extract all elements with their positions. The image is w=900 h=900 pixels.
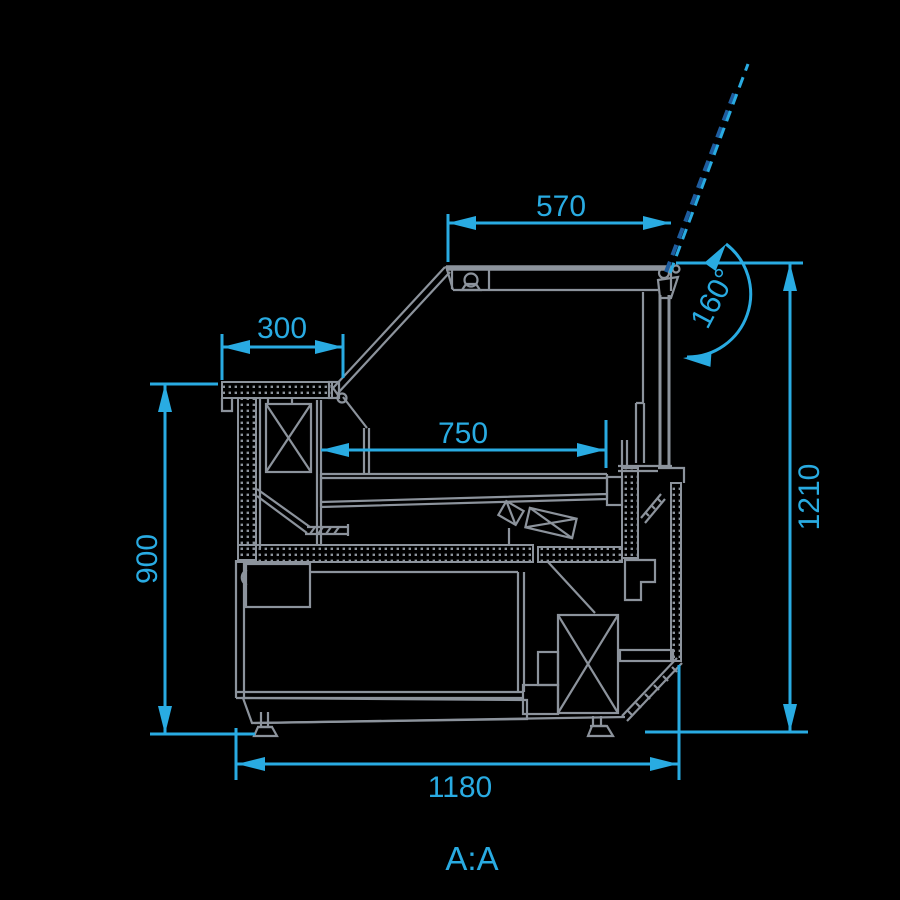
dim-lid-angle-label: 160° bbox=[684, 263, 742, 333]
dim-counter-height-label: 900 bbox=[131, 534, 164, 584]
compressor-niche bbox=[246, 564, 310, 607]
fan-unit bbox=[498, 501, 576, 545]
well-left-wall bbox=[317, 397, 369, 545]
section-drawing: 570 300 750 900 1210 bbox=[0, 0, 900, 900]
condenser-bay bbox=[523, 562, 673, 714]
floor-insulation bbox=[238, 545, 622, 562]
canopy bbox=[446, 266, 671, 291]
display-deck bbox=[321, 474, 622, 507]
dim-total-height-label: 1210 bbox=[793, 464, 826, 531]
fan-volute bbox=[625, 560, 655, 600]
duct-deflector bbox=[641, 494, 665, 523]
louver-grille bbox=[622, 658, 682, 721]
dim-total-depth-label: 1180 bbox=[428, 771, 493, 804]
drain-channel bbox=[257, 489, 348, 536]
dim-top-width-label: 570 bbox=[536, 190, 586, 223]
technical-drawing-canvas: 570 300 750 900 1210 bbox=[0, 0, 900, 900]
back-wall bbox=[238, 398, 260, 560]
front-panels bbox=[622, 468, 684, 661]
open-lid-dashed-line bbox=[666, 64, 748, 273]
dimensions: 570 300 750 900 1210 bbox=[131, 190, 826, 877]
dimension-counter-depth: 300 bbox=[222, 312, 343, 380]
lid-closed-glass bbox=[329, 267, 450, 403]
dimension-lid-angle: 160° bbox=[683, 240, 751, 367]
dim-counter-depth-label: 300 bbox=[257, 312, 307, 345]
section-label: A:A bbox=[445, 840, 498, 877]
front-glass bbox=[618, 292, 672, 471]
evaporator-coil bbox=[266, 398, 311, 472]
left-foot bbox=[257, 712, 273, 727]
base-and-feet bbox=[243, 698, 625, 736]
storage-cabinet bbox=[236, 560, 524, 698]
dim-display-depth-label: 750 bbox=[438, 417, 488, 450]
dimension-top-width: 570 bbox=[448, 190, 671, 262]
